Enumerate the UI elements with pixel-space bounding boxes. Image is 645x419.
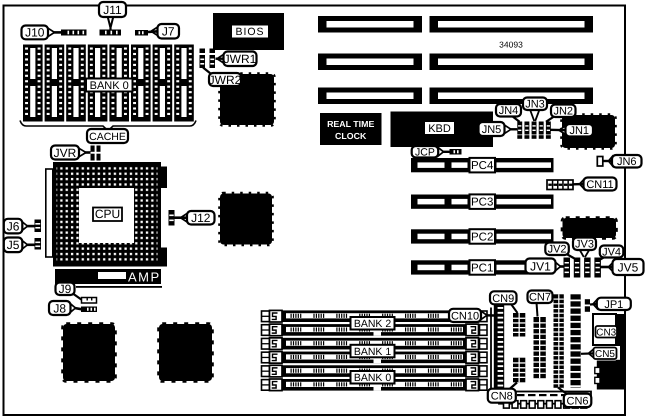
svg-text:J12: J12 (191, 211, 211, 225)
svg-text:CN9: CN9 (492, 293, 514, 305)
svg-text:CN7: CN7 (529, 292, 551, 304)
svg-text:JCP: JCP (415, 147, 435, 159)
svg-text:PC2: PC2 (471, 232, 493, 244)
svg-text:JN2: JN2 (553, 106, 573, 118)
svg-text:JV4: JV4 (602, 246, 621, 258)
svg-text:JV2: JV2 (548, 244, 567, 256)
svg-text:JV5: JV5 (618, 260, 639, 274)
svg-text:JV3: JV3 (575, 239, 594, 251)
svg-text:PC3: PC3 (471, 197, 493, 209)
svg-text:BANK 0: BANK 0 (90, 80, 129, 92)
svg-text:JN4: JN4 (499, 105, 519, 117)
svg-text:CN11: CN11 (586, 179, 613, 191)
svg-text:CN5: CN5 (595, 349, 615, 360)
svg-text:PC1: PC1 (471, 263, 493, 275)
svg-text:BANK 0: BANK 0 (354, 372, 392, 384)
svg-text:CN8: CN8 (491, 391, 513, 403)
svg-text:J8: J8 (53, 301, 66, 315)
svg-text:REAL TIME: REAL TIME (327, 119, 374, 129)
svg-text:CN10: CN10 (451, 310, 479, 322)
svg-text:BIOS: BIOS (235, 26, 264, 38)
svg-text:J6: J6 (7, 219, 20, 233)
svg-text:34093: 34093 (499, 40, 523, 50)
svg-text:BANK 1: BANK 1 (354, 346, 392, 358)
svg-text:J5: J5 (7, 238, 20, 252)
svg-text:J7: J7 (162, 25, 175, 39)
svg-text:J10: J10 (25, 26, 45, 40)
svg-text:JWR1: JWR1 (224, 52, 257, 66)
svg-text:BANK 2: BANK 2 (354, 318, 392, 330)
svg-text:JN1: JN1 (569, 125, 589, 137)
svg-text:CPU: CPU (95, 207, 120, 221)
svg-text:AMP: AMP (128, 270, 161, 285)
svg-text:CN6: CN6 (567, 395, 589, 407)
svg-text:KBD: KBD (428, 123, 451, 135)
svg-text:CACHE: CACHE (89, 131, 126, 143)
svg-text:CLOCK: CLOCK (335, 131, 367, 141)
svg-text:JN3: JN3 (525, 99, 545, 111)
svg-text:J11: J11 (103, 3, 122, 17)
svg-text:JN6: JN6 (617, 156, 637, 168)
svg-text:JVR: JVR (54, 146, 77, 160)
svg-text:J9: J9 (59, 282, 72, 296)
svg-text:JN5: JN5 (482, 124, 502, 136)
svg-text:CN3: CN3 (596, 327, 616, 338)
svg-text:PC4: PC4 (471, 160, 494, 172)
svg-text:JP1: JP1 (604, 299, 623, 311)
svg-text:JV1: JV1 (530, 259, 551, 273)
svg-text:JWR2: JWR2 (209, 73, 242, 87)
